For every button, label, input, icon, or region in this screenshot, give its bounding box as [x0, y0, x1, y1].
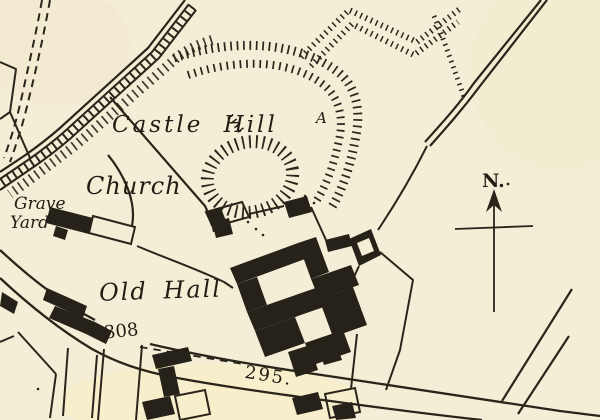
label-old-hall: Old Hall	[99, 274, 223, 306]
label-yard: Yard	[10, 213, 49, 233]
map-canvas: Castle Hill Church Grave Yard Old Hall A…	[0, 0, 600, 420]
earthwork-dot	[313, 202, 316, 205]
label-grave: Grave	[14, 194, 66, 214]
earthwork-dot	[247, 221, 250, 224]
label-north: N.	[482, 170, 505, 192]
spot-height-dot	[96, 328, 100, 332]
earthwork-dot	[262, 234, 265, 237]
historic-map-svg: Castle Hill Church Grave Yard Old Hall A…	[0, 0, 600, 420]
map-dot	[37, 388, 40, 391]
north-label-dot	[507, 183, 510, 186]
label-spot-height-308: 308	[103, 319, 139, 343]
label-annotation-a: A	[314, 109, 327, 127]
earthwork-dot	[255, 228, 258, 231]
label-church: Church	[86, 172, 182, 200]
label-castle-hill: Castle Hill	[112, 112, 278, 138]
